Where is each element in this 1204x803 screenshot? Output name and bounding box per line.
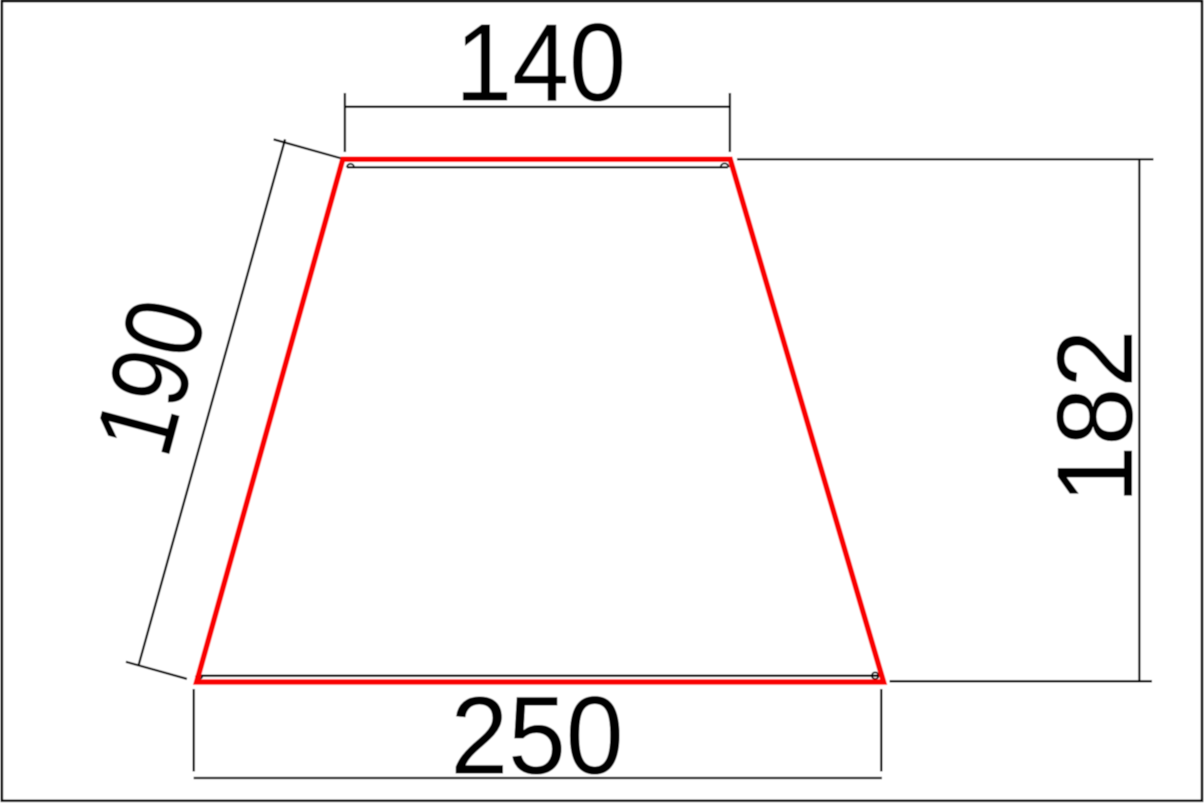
svg-text:182: 182 bbox=[1034, 330, 1155, 504]
svg-text:250: 250 bbox=[451, 675, 624, 798]
svg-text:140: 140 bbox=[455, 2, 626, 125]
